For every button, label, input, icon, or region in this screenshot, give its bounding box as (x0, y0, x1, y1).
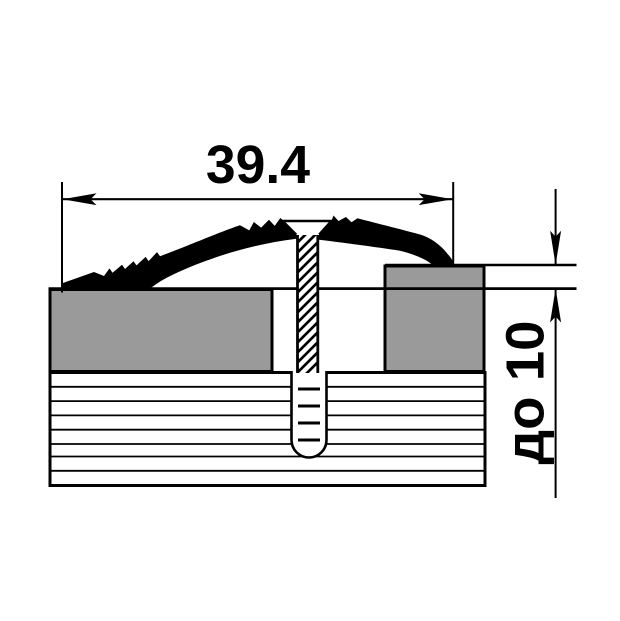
svg-text:до 10: до 10 (496, 321, 556, 465)
svg-text:39.4: 39.4 (206, 136, 310, 195)
